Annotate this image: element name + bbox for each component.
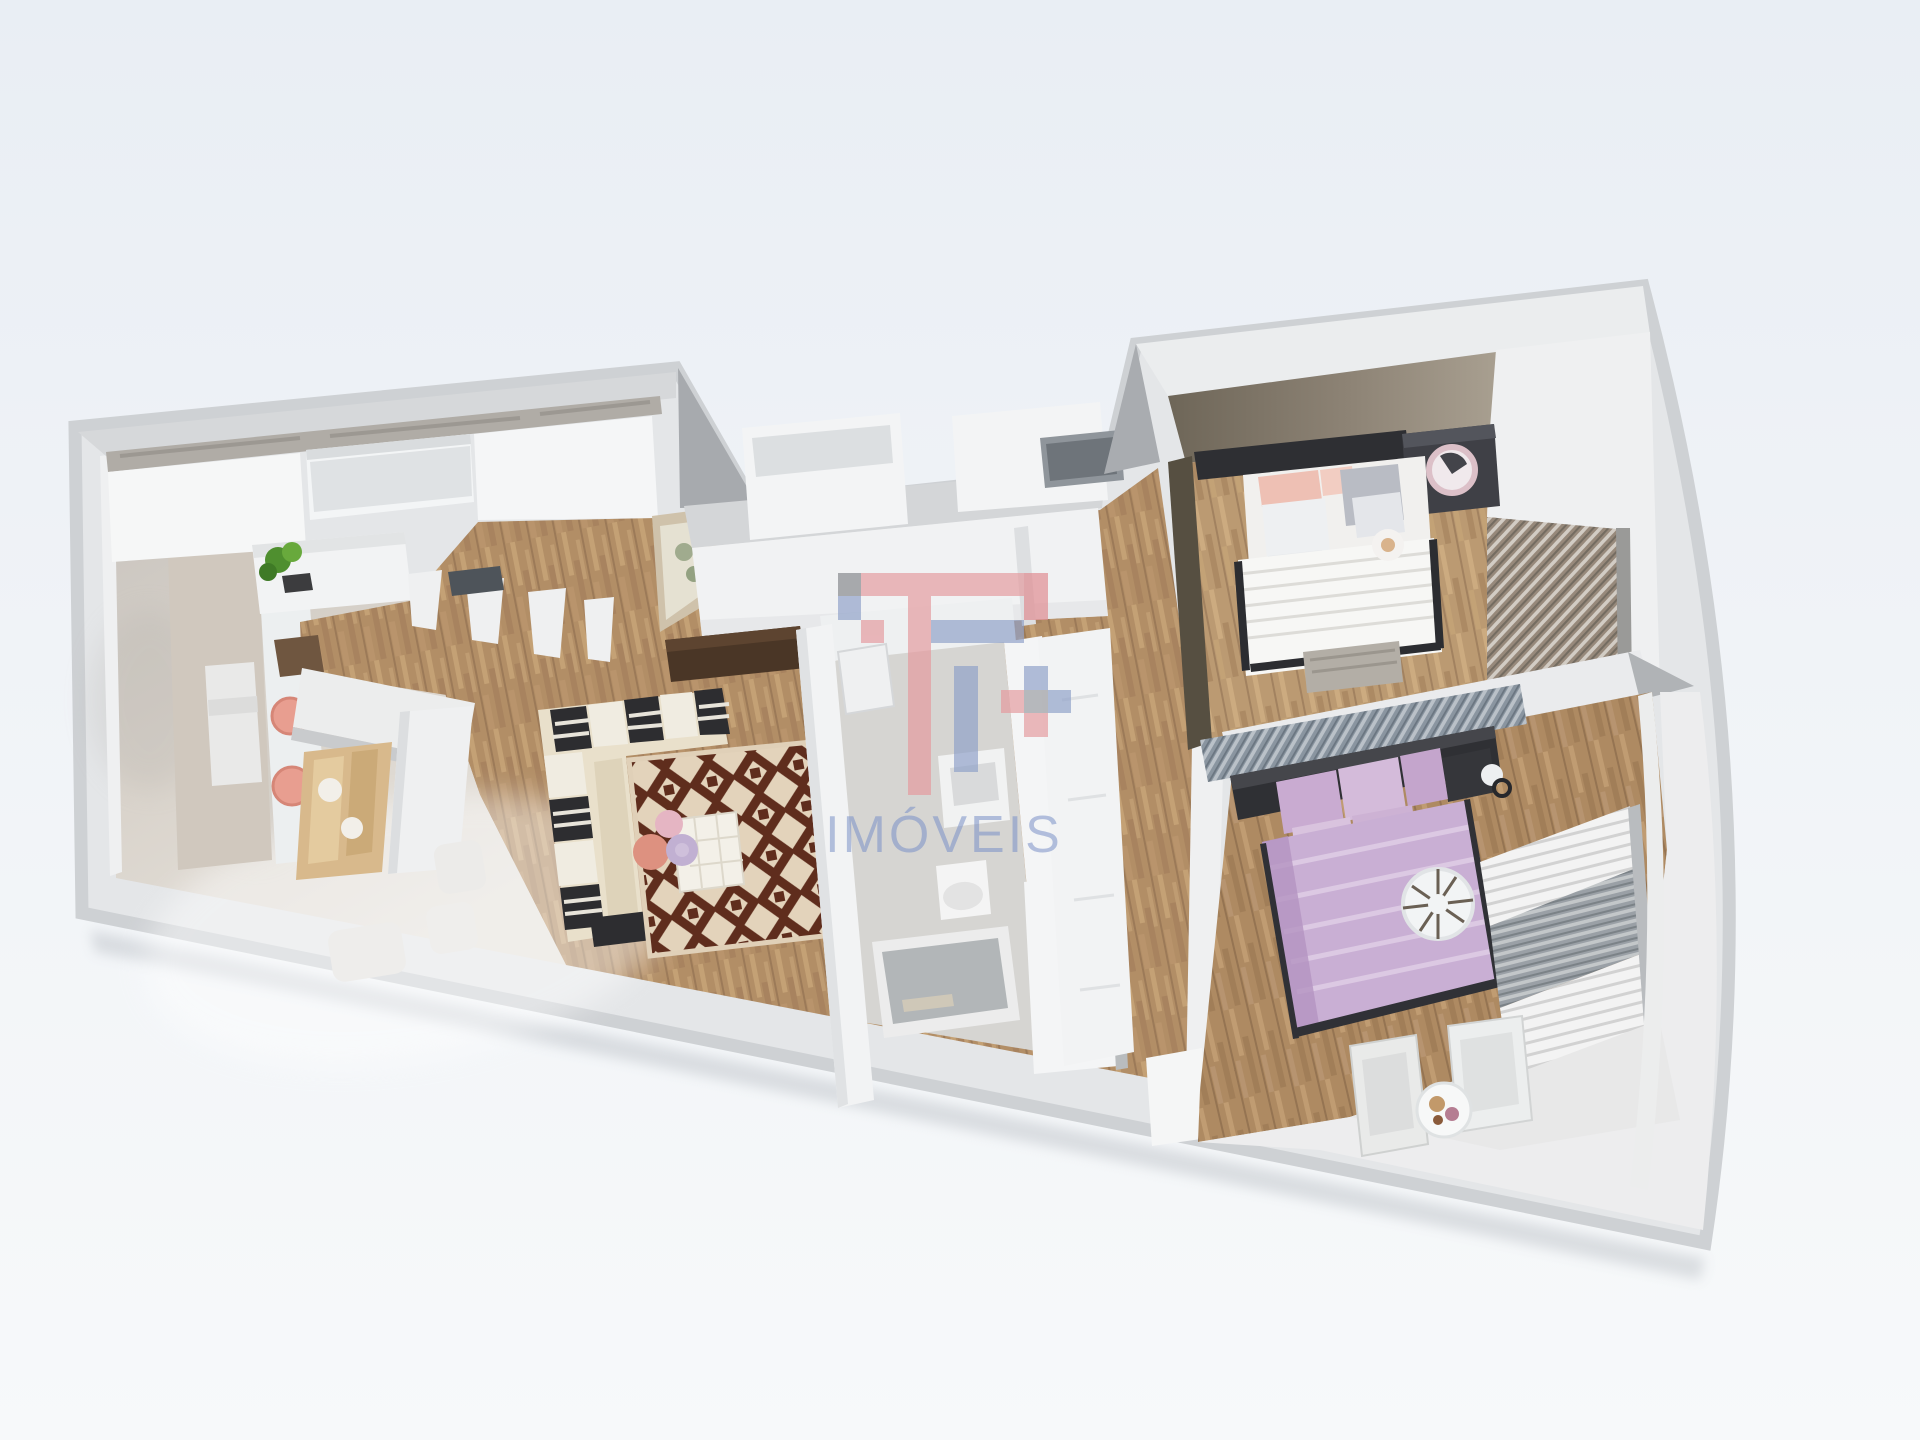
svg-text:IMÓVEIS: IMÓVEIS xyxy=(825,806,1063,864)
